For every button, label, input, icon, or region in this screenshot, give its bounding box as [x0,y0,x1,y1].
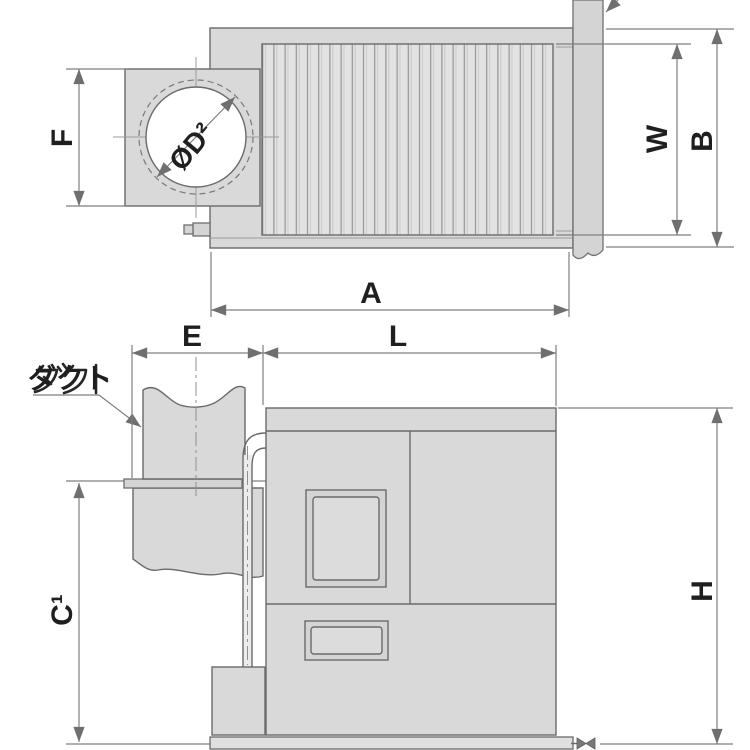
dimension-H: H [558,408,733,744]
duct-leader [33,395,141,427]
upper-duct [143,386,245,479]
dimension-L: L [263,320,556,406]
pipe-fill [243,455,252,667]
label-B: B [686,130,719,152]
top-view: ØD² F A W B [46,0,734,317]
door-panel-lower-inner [311,627,382,654]
dimensional-drawing-page: ØD² F A W B [0,0,750,750]
duct-flange [124,479,242,488]
drain-stub-cap [184,225,193,234]
duct-pointer-arrow [606,0,618,12]
label-E: E [182,320,202,353]
label-H: H [686,580,719,602]
label-L: L [389,320,407,353]
vertical-duct [573,0,603,259]
drain-stub [193,223,210,236]
label-W: W [641,124,674,153]
dimension-A: A [211,252,569,317]
valve-bowtie [577,738,595,749]
pedestal [212,667,265,735]
fin-section [262,44,553,235]
door-panel-upper-inner [313,497,379,580]
base-plate [210,737,573,749]
label-C1: C¹ [46,594,79,626]
dimensional-drawing: ØD² F A W B [0,0,750,750]
duct-label-text: ダクト [28,362,112,394]
drain-valve [571,738,595,749]
label-F: F [46,129,79,147]
side-view: ダクト E L C¹ H [28,320,733,749]
label-A: A [360,277,382,310]
